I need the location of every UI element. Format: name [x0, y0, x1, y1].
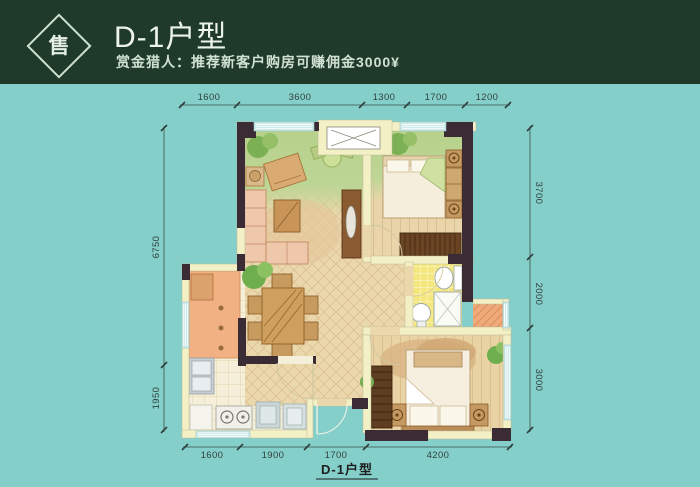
sale-badge-label: 售	[49, 36, 70, 57]
dim-bottom-4: 4200	[427, 450, 450, 461]
page-title: D-1户型	[114, 12, 227, 56]
dim-left-2: 1950	[151, 387, 162, 410]
dim-top-4: 1700	[425, 92, 448, 103]
page-header: 售 D-1户型 赏金猎人：推荐新客户购房可赚佣金3000¥	[0, 0, 700, 86]
dim-top-1: 1600	[198, 92, 221, 103]
promo-subtitle: 赏金猎人：推荐新客户购房可赚佣金3000¥	[116, 52, 400, 72]
plan-caption: D-1户型	[321, 462, 373, 477]
dim-top-5: 1200	[476, 92, 499, 103]
dim-right-3: 3000	[533, 369, 544, 392]
dim-bottom-2: 1900	[262, 450, 285, 461]
dim-right-1: 3700	[533, 182, 544, 205]
floor-plan-drawing: 1600 3600 1300 1700 1200 1600 1900 1700 …	[0, 84, 700, 482]
floor-plan-area: 1600 3600 1300 1700 1200 1600 1900 1700 …	[0, 84, 700, 482]
dim-top-3: 1300	[373, 92, 396, 103]
ac-unit	[327, 127, 380, 149]
dim-top-2: 3600	[289, 92, 312, 103]
dim-bottom-1: 1600	[201, 450, 224, 461]
dim-bottom-3: 1700	[325, 450, 348, 461]
dim-right-2: 2000	[533, 283, 544, 306]
dim-left-1: 6750	[151, 236, 162, 259]
sale-diamond-badge: 售	[26, 13, 91, 78]
